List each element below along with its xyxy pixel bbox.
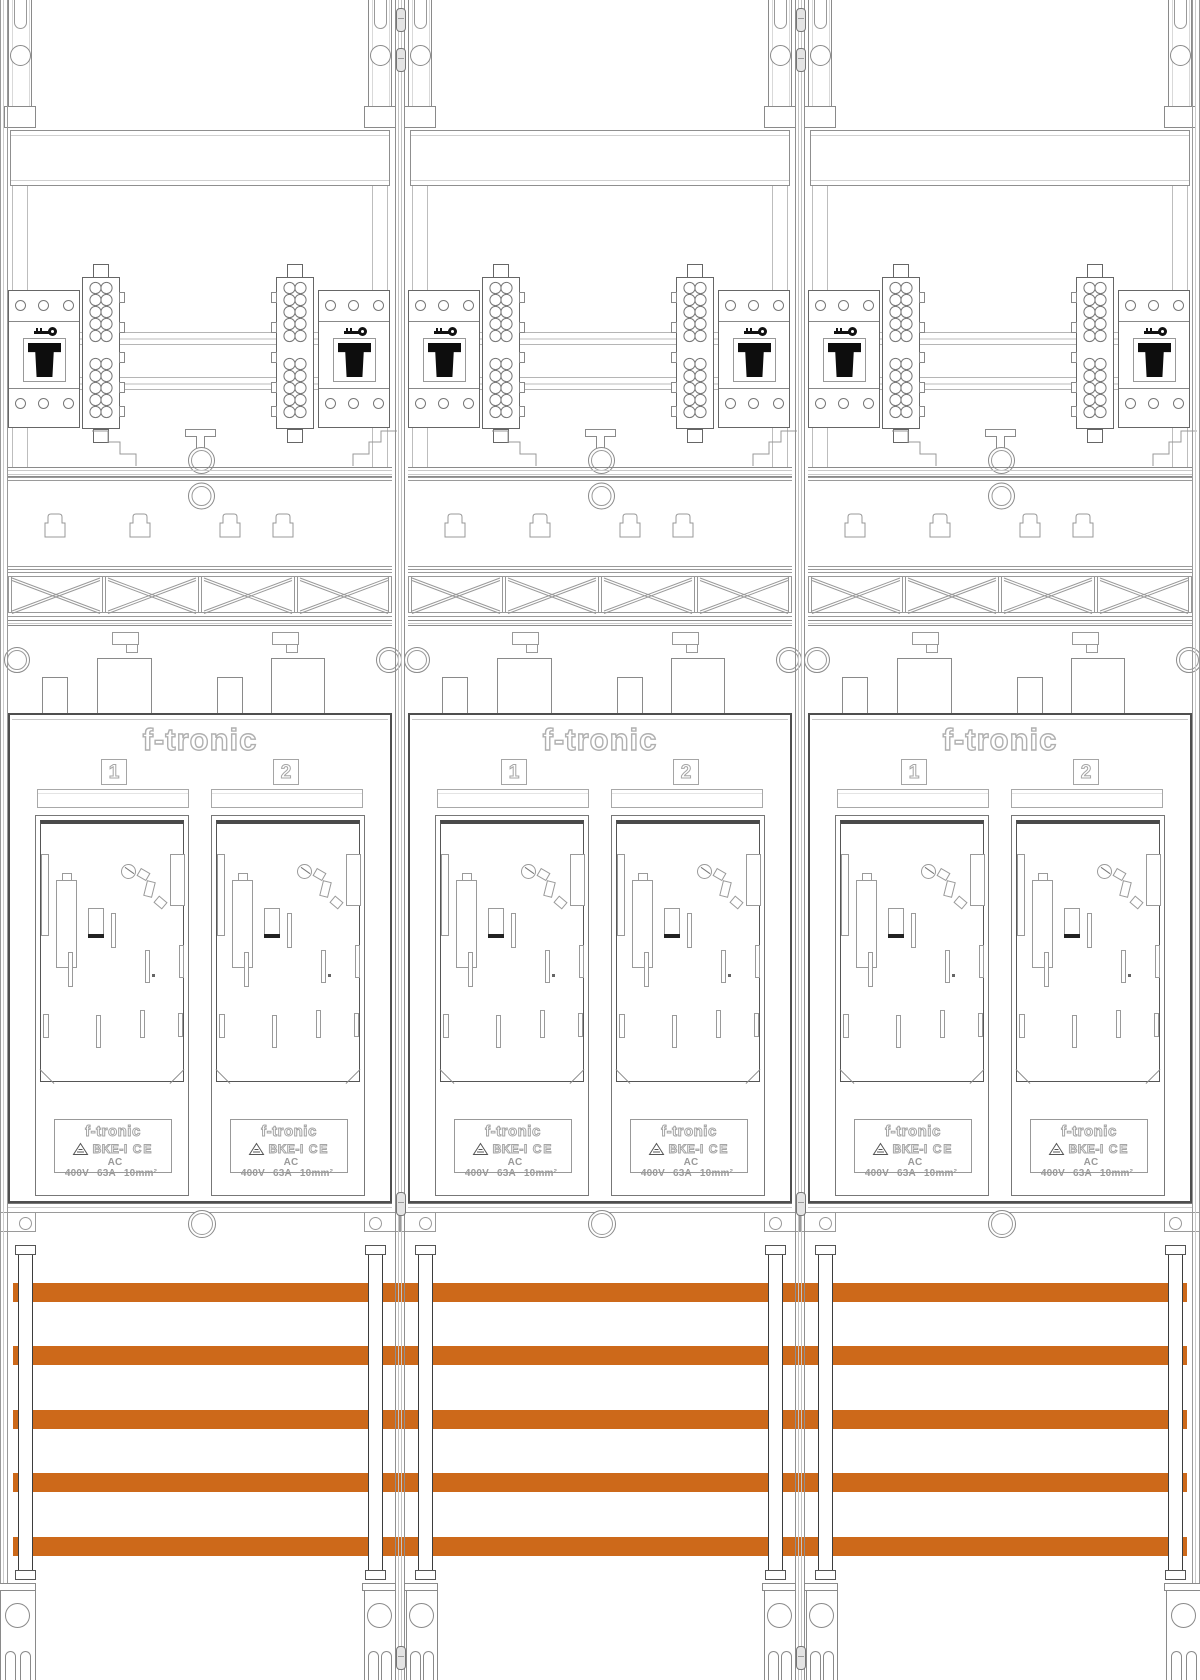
screw-hole <box>15 300 26 311</box>
mech-detail <box>244 952 249 987</box>
rail-foot-block <box>364 106 396 128</box>
rating-plate: f-tronic BKE-I CE AC 400V63A10mm² <box>854 1119 972 1173</box>
mech-detail <box>619 1014 625 1038</box>
mount-tab-wide <box>671 658 725 714</box>
brand-logo: f-tronic <box>800 722 1200 758</box>
mech-detail <box>1064 934 1080 938</box>
plate-model: BKE-I <box>893 1142 928 1156</box>
mech-detail <box>644 952 649 987</box>
key-icon <box>744 327 768 338</box>
mech-detail <box>746 854 761 906</box>
mech-detail <box>1154 1013 1159 1037</box>
chamfer <box>570 1069 585 1084</box>
busbar-5 <box>13 1537 1187 1556</box>
meter-window: f-tronic BKE-I CE AC 400V63A10mm² <box>35 815 189 1196</box>
rail-foot <box>0 1590 36 1680</box>
screw-hole <box>415 300 426 311</box>
mech-detail <box>543 880 556 898</box>
panel-seam <box>795 0 805 1680</box>
seam-bolt <box>396 8 406 32</box>
seal-screw-icon <box>121 864 136 879</box>
plate-brand: f-tronic <box>455 1123 571 1140</box>
mech-detail <box>1017 854 1025 936</box>
mech-detail <box>978 1013 983 1037</box>
certification-triangle-icon <box>249 1143 264 1155</box>
terminal-block <box>276 277 314 429</box>
sealing-cover-device <box>1118 290 1190 428</box>
certification-triangle-icon <box>1049 1143 1064 1155</box>
mech-detail <box>178 1013 183 1037</box>
clip-tooth <box>519 382 525 393</box>
chamfer <box>840 1069 855 1084</box>
meter-board-technical-drawing: f-tronic 1 2 <box>0 0 1200 1680</box>
clip-tooth <box>119 406 125 417</box>
sealed-cover-icon <box>828 343 861 377</box>
seal-screw-icon <box>921 864 936 879</box>
mech-detail <box>1019 1014 1025 1038</box>
rail-hole <box>410 45 431 66</box>
clip-tooth <box>119 322 125 333</box>
rail-foot-block <box>764 106 796 128</box>
seam-bolt <box>796 48 806 72</box>
divider <box>1119 388 1189 389</box>
rail-foot <box>406 1590 438 1680</box>
mech-detail <box>719 880 732 898</box>
rail-hole <box>1170 45 1191 66</box>
latch-bracket <box>1072 632 1099 645</box>
step-brackets <box>408 429 792 468</box>
mech-detail <box>755 945 760 978</box>
truss-lower-edge <box>8 620 392 626</box>
mech-detail <box>346 854 361 906</box>
enclosure-inner-edge <box>412 719 788 720</box>
mech-detail <box>1119 880 1132 898</box>
truss-band <box>8 572 392 618</box>
chamfer <box>40 1069 55 1084</box>
mech-detail <box>940 1010 945 1038</box>
mech-detail <box>1128 974 1131 977</box>
screw-hole <box>373 398 384 409</box>
screw-hole <box>815 398 826 409</box>
label-slot <box>211 789 363 808</box>
mech-detail <box>287 913 292 948</box>
mech-detail <box>232 880 253 968</box>
latch-bracket <box>112 632 139 645</box>
mech-detail <box>638 873 648 881</box>
mech-detail <box>1112 868 1126 881</box>
chamfer <box>746 1069 761 1084</box>
plate-ratings: AC 400V63A10mm² <box>231 1157 347 1179</box>
ce-mark: CE <box>933 1142 954 1156</box>
mount-tab <box>1017 677 1043 714</box>
label-slot <box>611 789 763 808</box>
profile-rail-top <box>8 0 32 106</box>
rail-hole <box>770 45 791 66</box>
chamfer <box>1146 1069 1161 1084</box>
sealed-cover-frame <box>823 338 866 382</box>
screw-hole <box>863 398 874 409</box>
mech-detail <box>970 854 985 906</box>
clip-tooth <box>919 406 925 417</box>
sealing-cover-device <box>718 290 790 428</box>
terminal-holes <box>277 278 313 428</box>
plate-brand: f-tronic <box>55 1123 171 1140</box>
mech-detail <box>68 952 73 987</box>
mount-tab <box>842 677 868 714</box>
mech-detail <box>1032 880 1053 968</box>
rail-foot-block <box>404 106 436 128</box>
clip-tooth <box>671 322 677 333</box>
truss-lower-edge <box>808 620 1192 626</box>
keystone-band <box>8 477 392 570</box>
mech-detail <box>1121 950 1126 983</box>
mech-detail <box>896 1015 901 1048</box>
key-icon <box>34 327 58 338</box>
divider <box>719 388 789 389</box>
assembly-top-edge <box>808 467 1192 477</box>
clip-tooth <box>671 352 677 363</box>
mech-detail <box>88 934 104 938</box>
mech-detail <box>443 1014 449 1038</box>
plate-model: BKE-I <box>669 1142 704 1156</box>
screw-hole <box>38 300 49 311</box>
terminal-holes <box>83 278 119 428</box>
slot-number-2: 2 <box>673 759 699 785</box>
key-icon <box>834 327 858 338</box>
rail-foot-block <box>804 106 836 128</box>
key-icon <box>344 327 368 338</box>
busbar-1 <box>13 1283 1187 1302</box>
rail-slot <box>774 0 787 29</box>
rail-hole <box>370 45 391 66</box>
mech-detail <box>62 873 72 881</box>
seam-bolt <box>396 1646 406 1670</box>
meter-window: f-tronic BKE-I CE AC 400V63A10mm² <box>435 815 589 1196</box>
label-slot <box>837 789 989 808</box>
mech-detail <box>136 868 150 881</box>
slot-number-2: 2 <box>1073 759 1099 785</box>
busbar-rail <box>368 1252 383 1573</box>
plate-ratings: AC 400V63A10mm² <box>55 1157 171 1179</box>
bottom-hanger-ring <box>188 1210 216 1238</box>
cross-rail-band <box>410 130 790 186</box>
plate-ratings: AC 400V63A10mm² <box>631 1157 747 1179</box>
chamfer <box>970 1069 985 1084</box>
mech-detail <box>728 974 731 977</box>
seal-screw-icon <box>697 864 712 879</box>
clip-tooth <box>519 352 525 363</box>
rail-foot <box>364 1590 396 1680</box>
clip-tooth <box>119 292 125 303</box>
screw-hole <box>1148 300 1159 311</box>
busbar-rail <box>1168 1252 1183 1573</box>
terminal-cap <box>687 264 703 278</box>
plate-brand: f-tronic <box>855 1123 971 1140</box>
mech-detail <box>716 1010 721 1038</box>
screw-hole <box>1173 398 1184 409</box>
ce-mark: CE <box>133 1142 154 1156</box>
rail-slot <box>14 0 27 29</box>
assembly-top-edge <box>408 467 792 477</box>
mech-detail <box>943 880 956 898</box>
sealing-cover-device <box>808 290 880 428</box>
sealed-cover-frame <box>23 338 66 382</box>
edge-channel-left <box>0 0 8 1680</box>
mech-detail <box>1146 854 1161 906</box>
busbar-rail <box>818 1252 833 1573</box>
sealed-cover-frame <box>423 338 466 382</box>
rail-foot <box>764 1590 796 1680</box>
label-slot <box>437 789 589 808</box>
seam-bolt <box>796 1192 806 1216</box>
clip-tooth <box>519 322 525 333</box>
mech-detail <box>911 913 916 948</box>
chamfer <box>216 1069 231 1084</box>
rating-plate: f-tronic BKE-I CE AC 400V63A10mm² <box>1030 1119 1148 1173</box>
seam-bolt <box>796 8 806 32</box>
rating-plate: f-tronic BKE-I CE AC 400V63A10mm² <box>630 1119 748 1173</box>
mech-detail <box>264 934 280 938</box>
meter-window: f-tronic BKE-I CE AC 400V63A10mm² <box>835 815 989 1196</box>
chamfer <box>1016 1069 1031 1084</box>
seal-screw-icon <box>297 864 312 879</box>
mount-tab <box>42 677 68 714</box>
clip-tooth <box>671 292 677 303</box>
bottom-hanger-ring <box>988 1210 1016 1238</box>
mount-tab <box>217 677 243 714</box>
clip-tooth <box>919 352 925 363</box>
step-brackets <box>808 429 1192 468</box>
clip-tooth <box>519 292 525 303</box>
truss-band <box>808 572 1192 618</box>
latch-bracket <box>672 632 699 645</box>
mech-detail <box>456 880 477 968</box>
mech-detail <box>1038 873 1048 881</box>
sealed-cover-icon <box>1138 343 1171 377</box>
clip-tooth <box>271 352 277 363</box>
certification-triangle-icon <box>473 1143 488 1155</box>
ce-mark: CE <box>709 1142 730 1156</box>
sealed-cover-icon <box>338 343 371 377</box>
rail-hole <box>10 45 31 66</box>
mech-detail <box>540 1010 545 1038</box>
certification-triangle-icon <box>873 1143 888 1155</box>
enclosure-inner-edge <box>812 719 1188 720</box>
rating-plate: f-tronic BKE-I CE AC 400V63A10mm² <box>54 1119 172 1173</box>
screw-hole <box>348 398 359 409</box>
mech-detail <box>143 880 156 898</box>
mech-detail <box>936 868 950 881</box>
seam-bolt <box>396 48 406 72</box>
terminal-cap <box>893 264 909 278</box>
mech-detail <box>729 896 743 910</box>
divider <box>809 388 879 389</box>
clip-tooth <box>1071 322 1077 333</box>
mech-detail <box>617 854 625 936</box>
plate-ratings: AC 400V63A10mm² <box>455 1157 571 1179</box>
keystone-band <box>408 477 792 570</box>
mech-detail <box>945 950 950 983</box>
mech-detail <box>953 896 967 910</box>
mech-detail <box>496 1015 501 1048</box>
sealed-cover-frame <box>1133 338 1176 382</box>
mech-detail <box>664 934 680 938</box>
mech-detail <box>170 854 185 906</box>
mech-detail <box>862 873 872 881</box>
mech-detail <box>952 974 955 977</box>
screw-hole <box>1173 300 1184 311</box>
busbar-2 <box>13 1346 1187 1365</box>
clip-tooth <box>271 292 277 303</box>
clip-tooth <box>1071 292 1077 303</box>
ce-mark: CE <box>1109 1142 1130 1156</box>
label-slot <box>1011 789 1163 808</box>
mech-detail <box>468 952 473 987</box>
terminal-cap <box>287 264 303 278</box>
sealed-cover-icon <box>428 343 461 377</box>
meter-window-glass <box>1016 820 1160 1082</box>
slot-number-1: 1 <box>501 759 527 785</box>
screw-hole <box>725 398 736 409</box>
mech-detail <box>145 950 150 983</box>
mech-detail <box>354 1013 359 1037</box>
divider <box>409 321 479 322</box>
mech-detail <box>687 913 692 948</box>
mech-detail <box>754 1013 759 1037</box>
mech-detail <box>843 1014 849 1038</box>
ce-mark: CE <box>533 1142 554 1156</box>
screw-hole <box>463 398 474 409</box>
clip-tooth <box>271 406 277 417</box>
screw-hole <box>725 300 736 311</box>
meter-window-glass <box>40 820 184 1082</box>
busbar-rail <box>18 1252 33 1573</box>
clip-tooth <box>1071 352 1077 363</box>
terminal-holes <box>677 278 713 428</box>
slot-number-2: 2 <box>273 759 299 785</box>
mech-detail <box>321 950 326 983</box>
mech-detail <box>1044 952 1049 987</box>
divider <box>319 321 389 322</box>
mech-detail <box>43 1014 49 1038</box>
terminal-block <box>882 277 920 429</box>
mech-detail <box>721 950 726 983</box>
plate-model: BKE-I <box>1069 1142 1104 1156</box>
mech-detail <box>238 873 248 881</box>
terminal-block <box>482 277 520 429</box>
busbar-rail <box>768 1252 783 1573</box>
rail-slot <box>814 0 827 29</box>
screw-hole <box>415 398 426 409</box>
screw-hole <box>373 300 384 311</box>
chamfer <box>170 1069 185 1084</box>
screw-hole <box>838 300 849 311</box>
mech-detail <box>319 880 332 898</box>
mech-detail <box>441 854 449 936</box>
screw-hole <box>438 300 449 311</box>
mech-detail <box>1072 1015 1077 1048</box>
busbar-rail <box>418 1252 433 1573</box>
mech-detail <box>329 896 343 910</box>
rail-slot <box>374 0 387 29</box>
rating-plate: f-tronic BKE-I CE AC 400V63A10mm² <box>230 1119 348 1173</box>
plate-model: BKE-I <box>493 1142 528 1156</box>
screw-hole <box>748 300 759 311</box>
terminal-cap <box>493 264 509 278</box>
rail-foot <box>806 1590 838 1680</box>
mech-detail <box>1116 1010 1121 1038</box>
clip-tooth <box>271 322 277 333</box>
ce-mark: CE <box>309 1142 330 1156</box>
mech-detail <box>316 1010 321 1038</box>
screw-hole <box>348 300 359 311</box>
divider <box>9 388 79 389</box>
profile-rail-top <box>368 0 392 106</box>
truss-band <box>408 572 792 618</box>
plate-ratings: AC 400V63A10mm² <box>1031 1157 1147 1179</box>
mech-detail <box>153 896 167 910</box>
sealed-cover-frame <box>333 338 376 382</box>
terminal-holes <box>483 278 519 428</box>
clip-tooth <box>271 382 277 393</box>
slot-number-1: 1 <box>101 759 127 785</box>
clip-tooth <box>519 406 525 417</box>
mech-detail <box>152 974 155 977</box>
terminal-block <box>1076 277 1114 429</box>
rating-plate: f-tronic BKE-I CE AC 400V63A10mm² <box>454 1119 572 1173</box>
seam-bolt <box>796 1646 806 1670</box>
certification-triangle-icon <box>73 1143 88 1155</box>
latch-bracket <box>512 632 539 645</box>
screw-hole <box>438 398 449 409</box>
meter-window-glass <box>440 820 584 1082</box>
cross-rail-band <box>10 130 390 186</box>
mech-detail <box>979 945 984 978</box>
busbar-4 <box>13 1473 1187 1492</box>
bottom-bracket <box>400 1212 436 1232</box>
divider <box>319 388 389 389</box>
terminal-holes <box>883 278 919 428</box>
mech-detail <box>536 868 550 881</box>
bottom-hanger-ring <box>588 1210 616 1238</box>
mount-tab <box>617 677 643 714</box>
mount-tab <box>442 677 468 714</box>
mech-detail <box>712 868 726 881</box>
terminal-block <box>676 277 714 429</box>
mech-detail <box>553 896 567 910</box>
chamfer <box>616 1069 631 1084</box>
screw-hole <box>63 300 74 311</box>
mech-detail <box>545 950 550 983</box>
screw-hole <box>815 300 826 311</box>
clip-tooth <box>671 406 677 417</box>
screw-hole <box>773 300 784 311</box>
screw-hole <box>325 398 336 409</box>
mech-detail <box>578 1013 583 1037</box>
meter-window: f-tronic BKE-I CE AC 400V63A10mm² <box>611 815 765 1196</box>
mech-detail <box>1087 913 1092 948</box>
mount-tab-wide <box>97 658 152 714</box>
panel-seam <box>395 0 405 1680</box>
mech-detail <box>511 913 516 948</box>
clip-tooth <box>119 382 125 393</box>
sealing-cover-device <box>408 290 480 428</box>
profile-rail-top <box>1168 0 1192 106</box>
assembly-top-edge <box>8 467 392 477</box>
mech-detail <box>355 945 360 978</box>
bottom-bracket <box>800 1212 836 1232</box>
terminal-cap <box>93 264 109 278</box>
